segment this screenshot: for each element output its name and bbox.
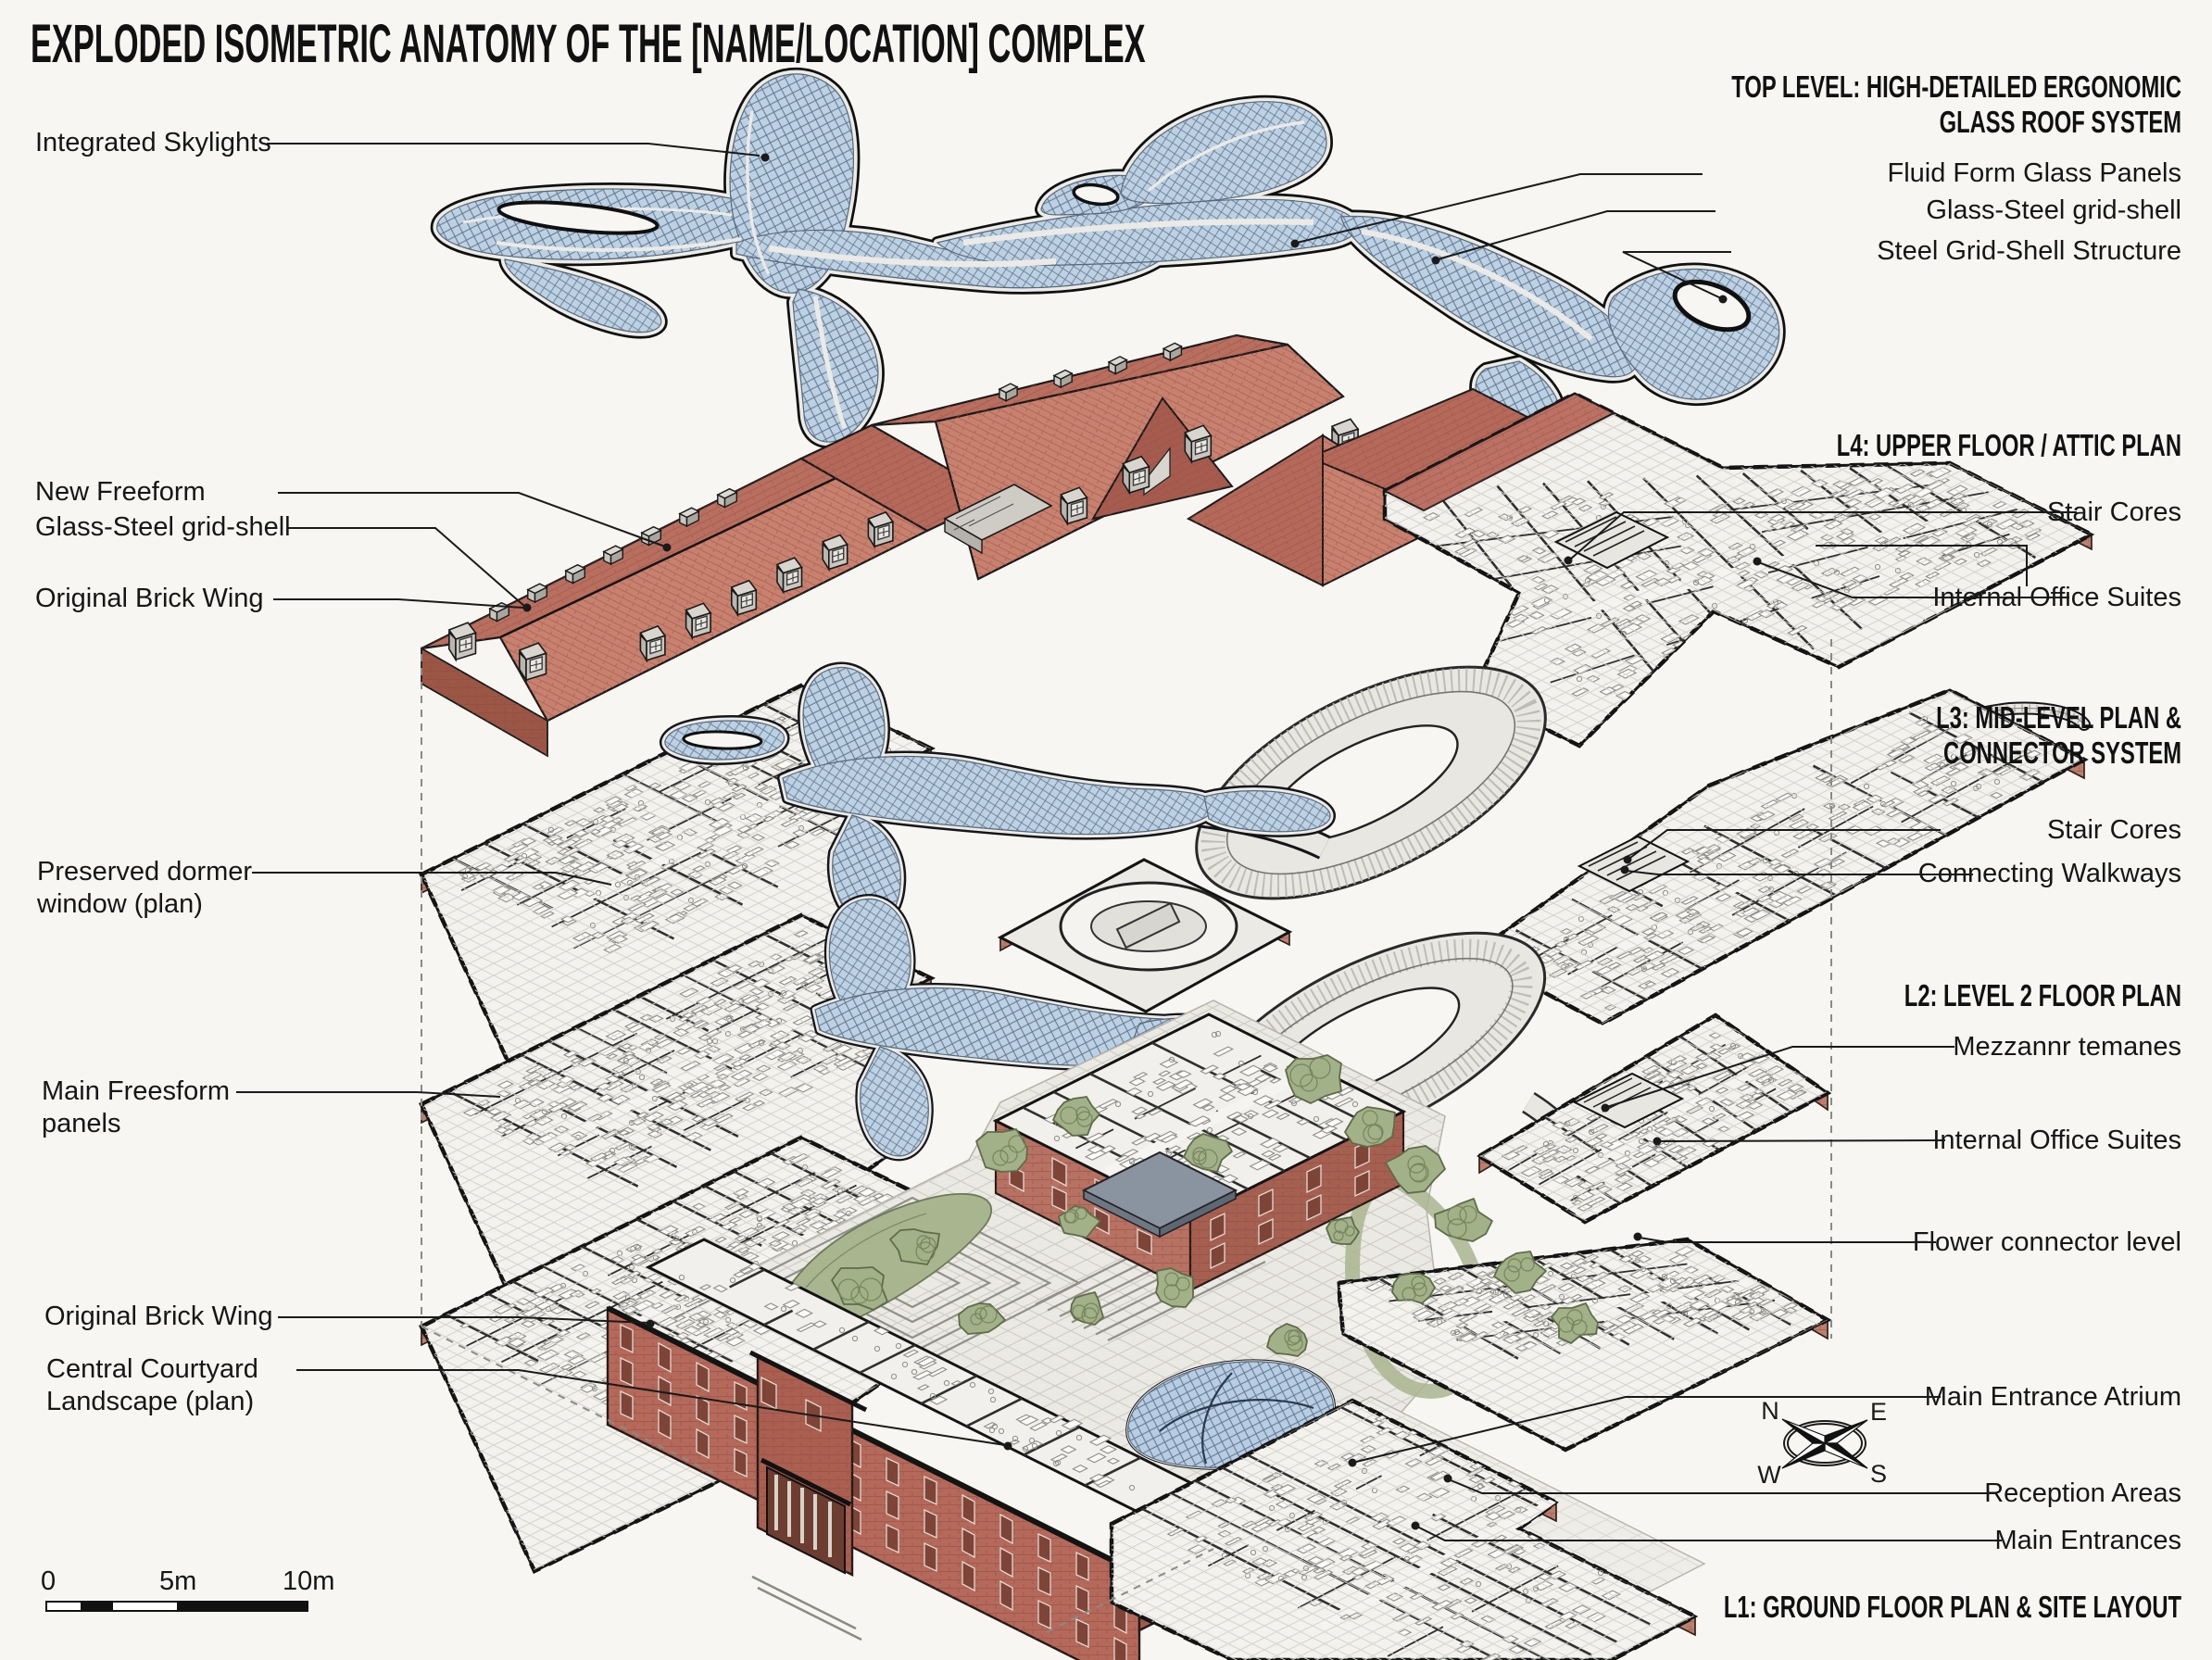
svg-text:Original Brick Wing: Original Brick Wing (35, 584, 264, 613)
svg-text:Mezzannr temanes: Mezzannr temanes (1953, 1032, 2181, 1062)
svg-text:Main Freesform: Main Freesform (42, 1076, 230, 1106)
svg-text:Internal Office Suites: Internal Office Suites (1932, 1126, 2181, 1155)
svg-text:L4: UPPER FLOOR / ATTIC PLAN: L4: UPPER FLOOR / ATTIC PLAN (1837, 429, 2181, 463)
svg-text:Preserved dormer: Preserved dormer (37, 857, 252, 887)
svg-text:panels: panels (42, 1109, 120, 1138)
svg-text:5m: 5m (159, 1566, 196, 1596)
svg-text:E: E (1870, 1398, 1887, 1426)
svg-text:GLASS ROOF SYSTEM: GLASS ROOF SYSTEM (1940, 106, 2181, 140)
svg-text:Glass-Steel grid-shell: Glass-Steel grid-shell (1926, 195, 2181, 225)
svg-text:Flower connector level: Flower connector level (1913, 1227, 2181, 1257)
svg-text:L3: MID-LEVEL PLAN &: L3: MID-LEVEL PLAN & (1936, 701, 2181, 736)
svg-text:L2: LEVEL 2 FLOOR PLAN: L2: LEVEL 2 FLOOR PLAN (1904, 979, 2181, 1013)
svg-text:N: N (1761, 1397, 1779, 1425)
svg-text:TOP LEVEL: HIGH-DETAILED ERGON: TOP LEVEL: HIGH-DETAILED ERGONOMIC (1731, 70, 2181, 105)
svg-text:0: 0 (41, 1566, 56, 1596)
svg-text:S: S (1870, 1460, 1887, 1488)
svg-text:New Freeform: New Freeform (35, 477, 206, 507)
svg-text:Reception Areas: Reception Areas (1984, 1478, 2181, 1508)
svg-text:Stair Cores: Stair Cores (2047, 815, 2181, 845)
svg-text:Glass-Steel grid-shell: Glass-Steel grid-shell (35, 512, 291, 542)
svg-text:EXPLODED ISOMETRIC ANATOMY OF: EXPLODED ISOMETRIC ANATOMY OF THE [NAME/… (31, 15, 1146, 74)
svg-text:CONNECTOR SYSTEM: CONNECTOR SYSTEM (1943, 736, 2181, 771)
svg-text:Fluid Form Glass Panels: Fluid Form Glass Panels (1888, 158, 2182, 188)
svg-text:window (plan): window (plan) (36, 889, 203, 919)
svg-text:Integrated Skylights: Integrated Skylights (35, 128, 271, 157)
svg-text:Main Entrances: Main Entrances (1995, 1526, 2182, 1555)
svg-text:Steel Grid-Shell Structure: Steel Grid-Shell Structure (1877, 236, 2181, 266)
svg-text:W: W (1757, 1461, 1781, 1489)
svg-text:Original Brick Wing: Original Brick Wing (44, 1302, 273, 1331)
svg-text:10m: 10m (283, 1566, 334, 1596)
svg-text:Main Entrance Atrium: Main Entrance Atrium (1925, 1382, 2181, 1412)
svg-text:Landscape (plan): Landscape (plan) (46, 1387, 254, 1416)
svg-text:L1: GROUND FLOOR PLAN & SITE L: L1: GROUND FLOOR PLAN & SITE LAYOUT (1724, 1591, 2181, 1625)
svg-text:Central Courtyard: Central Courtyard (46, 1354, 258, 1384)
